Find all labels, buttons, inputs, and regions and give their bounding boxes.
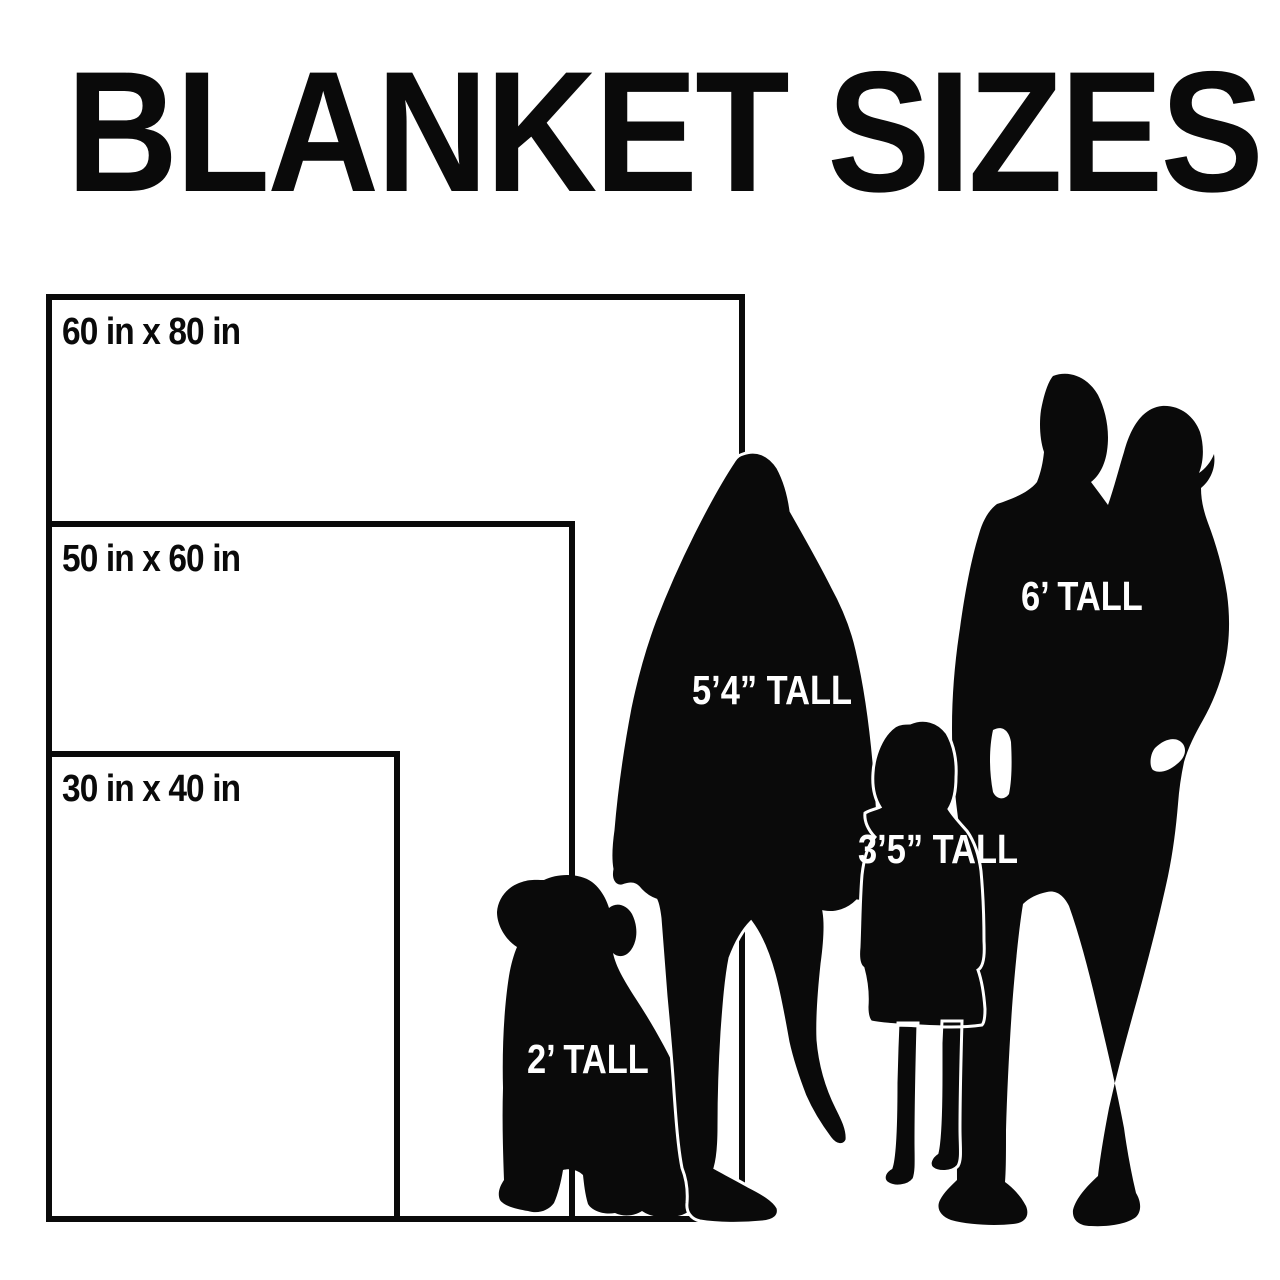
page-title: BLANKET SIZES: [0, 46, 1280, 218]
woman-silhouette: [608, 448, 888, 1238]
woman-shape: [611, 452, 879, 1223]
girl-shape: [859, 720, 985, 1186]
dog-height-label: 2’ TALL: [527, 1039, 649, 1080]
woman-height-label: 5’4” TALL: [692, 670, 852, 711]
blanket-size-label-60x80: 60 in x 80 in: [62, 313, 240, 351]
blanket-size-chart: BLANKET SIZES 60 in x 80 in 50 in x 60 i…: [0, 0, 1280, 1280]
page-title-text: BLANKET SIZES: [66, 46, 1261, 218]
girl-height-label: 3’5” TALL: [858, 829, 1018, 870]
blanket-size-label-50x60: 50 in x 60 in: [62, 540, 240, 578]
girl-silhouette: [850, 713, 1012, 1200]
man-height-label: 6’ TALL: [1021, 576, 1143, 617]
blanket-size-label-30x40: 30 in x 40 in: [62, 770, 240, 808]
blanket-outline-30x40: 30 in x 40 in: [46, 751, 400, 1222]
